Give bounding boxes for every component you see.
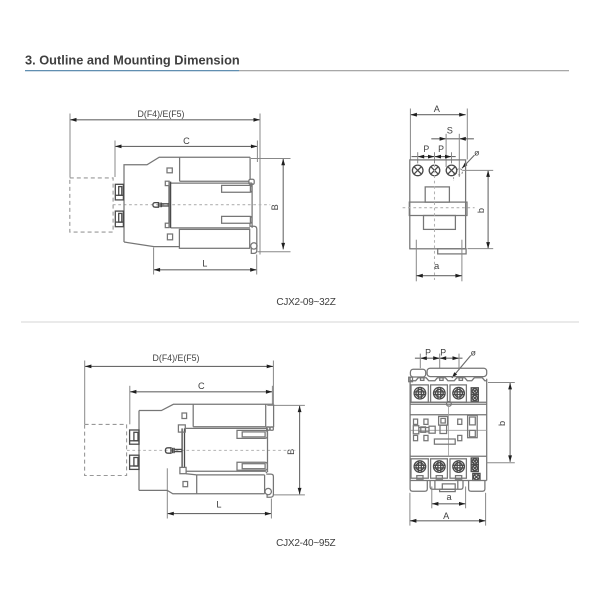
svg-text:L: L: [202, 258, 207, 268]
svg-text:D(F4)/E(F5): D(F4)/E(F5): [153, 353, 200, 363]
svg-text:b: b: [497, 421, 507, 426]
svg-text:P: P: [438, 144, 444, 154]
svg-text:ø: ø: [474, 148, 480, 158]
svg-text:P: P: [440, 348, 446, 358]
svg-text:ø: ø: [471, 348, 477, 358]
svg-text:CJX2-40~95Z: CJX2-40~95Z: [276, 538, 335, 549]
svg-text:a: a: [446, 492, 452, 502]
svg-text:B: B: [286, 449, 296, 455]
svg-text:B: B: [270, 204, 280, 210]
svg-text:A: A: [443, 511, 450, 521]
svg-text:CJX2-09~32Z: CJX2-09~32Z: [276, 297, 335, 308]
svg-text:S: S: [447, 126, 453, 136]
svg-text:P: P: [423, 144, 429, 154]
svg-text:C: C: [198, 381, 205, 391]
svg-text:b: b: [476, 208, 486, 213]
svg-text:D(F4)/E(F5): D(F4)/E(F5): [138, 109, 185, 119]
svg-text:P: P: [425, 348, 431, 358]
svg-text:A: A: [434, 104, 441, 114]
svg-text:C: C: [183, 136, 190, 146]
svg-text:a: a: [434, 261, 440, 271]
svg-text:3. Outline and Mounting Dimens: 3. Outline and Mounting Dimension: [25, 52, 240, 67]
svg-text:L: L: [216, 499, 221, 509]
